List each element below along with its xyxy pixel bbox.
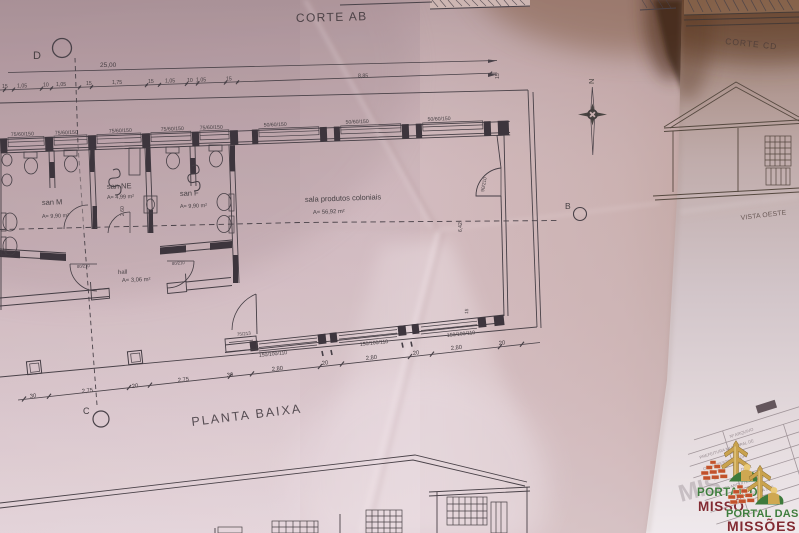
svg-text:15: 15 — [86, 81, 92, 87]
svg-text:15: 15 — [226, 77, 232, 83]
svg-text:D: D — [33, 50, 41, 62]
svg-text:20: 20 — [322, 360, 329, 367]
svg-text:10: 10 — [43, 83, 49, 89]
svg-text:CORTE AB: CORTE AB — [296, 9, 368, 25]
svg-text:A= 56,92 m²: A= 56,92 m² — [313, 209, 345, 216]
svg-text:N: N — [587, 79, 596, 84]
svg-text:san M: san M — [42, 197, 63, 207]
svg-text:15: 15 — [2, 84, 8, 90]
svg-text:15: 15 — [495, 73, 501, 79]
svg-text:1,05: 1,05 — [56, 82, 66, 88]
svg-text:30: 30 — [227, 372, 234, 379]
svg-text:20: 20 — [132, 383, 139, 390]
svg-text:2,80: 2,80 — [366, 355, 378, 362]
svg-text:MISSÕES: MISSÕES — [727, 517, 796, 533]
svg-text:2,75: 2,75 — [82, 388, 94, 395]
svg-text:20: 20 — [413, 350, 420, 357]
svg-text:A= 9,90 m²: A= 9,90 m² — [180, 203, 207, 210]
svg-text:C: C — [83, 406, 90, 416]
svg-text:50/60/150: 50/60/150 — [264, 122, 287, 129]
svg-text:A= 3,06 m²: A= 3,06 m² — [122, 277, 151, 284]
svg-text:15: 15 — [148, 79, 154, 85]
svg-text:8,85: 8,85 — [358, 74, 368, 80]
svg-text:2,80: 2,80 — [272, 366, 284, 373]
svg-text:20: 20 — [499, 340, 506, 347]
svg-text:75/60/150: 75/60/150 — [11, 131, 34, 138]
svg-text:30: 30 — [30, 393, 37, 400]
svg-text:A= 4,99 m²: A= 4,99 m² — [107, 194, 134, 201]
svg-text:15: 15 — [464, 308, 470, 314]
svg-text:1,75: 1,75 — [112, 80, 122, 86]
svg-text:2,75: 2,75 — [178, 377, 190, 384]
svg-text:75/60/150: 75/60/150 — [161, 126, 184, 133]
svg-text:50/60/150: 50/60/150 — [427, 116, 450, 123]
svg-text:1,05: 1,05 — [196, 78, 206, 84]
svg-text:san NE: san NE — [107, 181, 132, 191]
svg-text:10: 10 — [187, 78, 193, 84]
svg-text:6,42: 6,42 — [458, 222, 464, 232]
svg-text:80/210: 80/210 — [172, 260, 186, 266]
svg-text:1,05: 1,05 — [165, 79, 175, 85]
svg-text:50/60/150: 50/60/150 — [346, 119, 369, 126]
svg-text:hall: hall — [118, 270, 128, 276]
svg-text:75/60/150: 75/60/150 — [200, 125, 223, 132]
svg-text:75/60/150: 75/60/150 — [55, 130, 78, 137]
svg-text:1,05: 1,05 — [17, 84, 27, 90]
svg-text:A= 9,90 m²: A= 9,90 m² — [42, 213, 69, 220]
svg-text:2,60: 2,60 — [120, 206, 126, 216]
svg-text:80/210: 80/210 — [77, 263, 91, 269]
svg-text:2,80: 2,80 — [451, 345, 463, 352]
svg-text:75/60/150: 75/60/150 — [109, 128, 132, 135]
svg-text:B: B — [565, 201, 571, 211]
svg-text:25,00: 25,00 — [100, 62, 117, 69]
svg-text:san F: san F — [180, 188, 199, 198]
